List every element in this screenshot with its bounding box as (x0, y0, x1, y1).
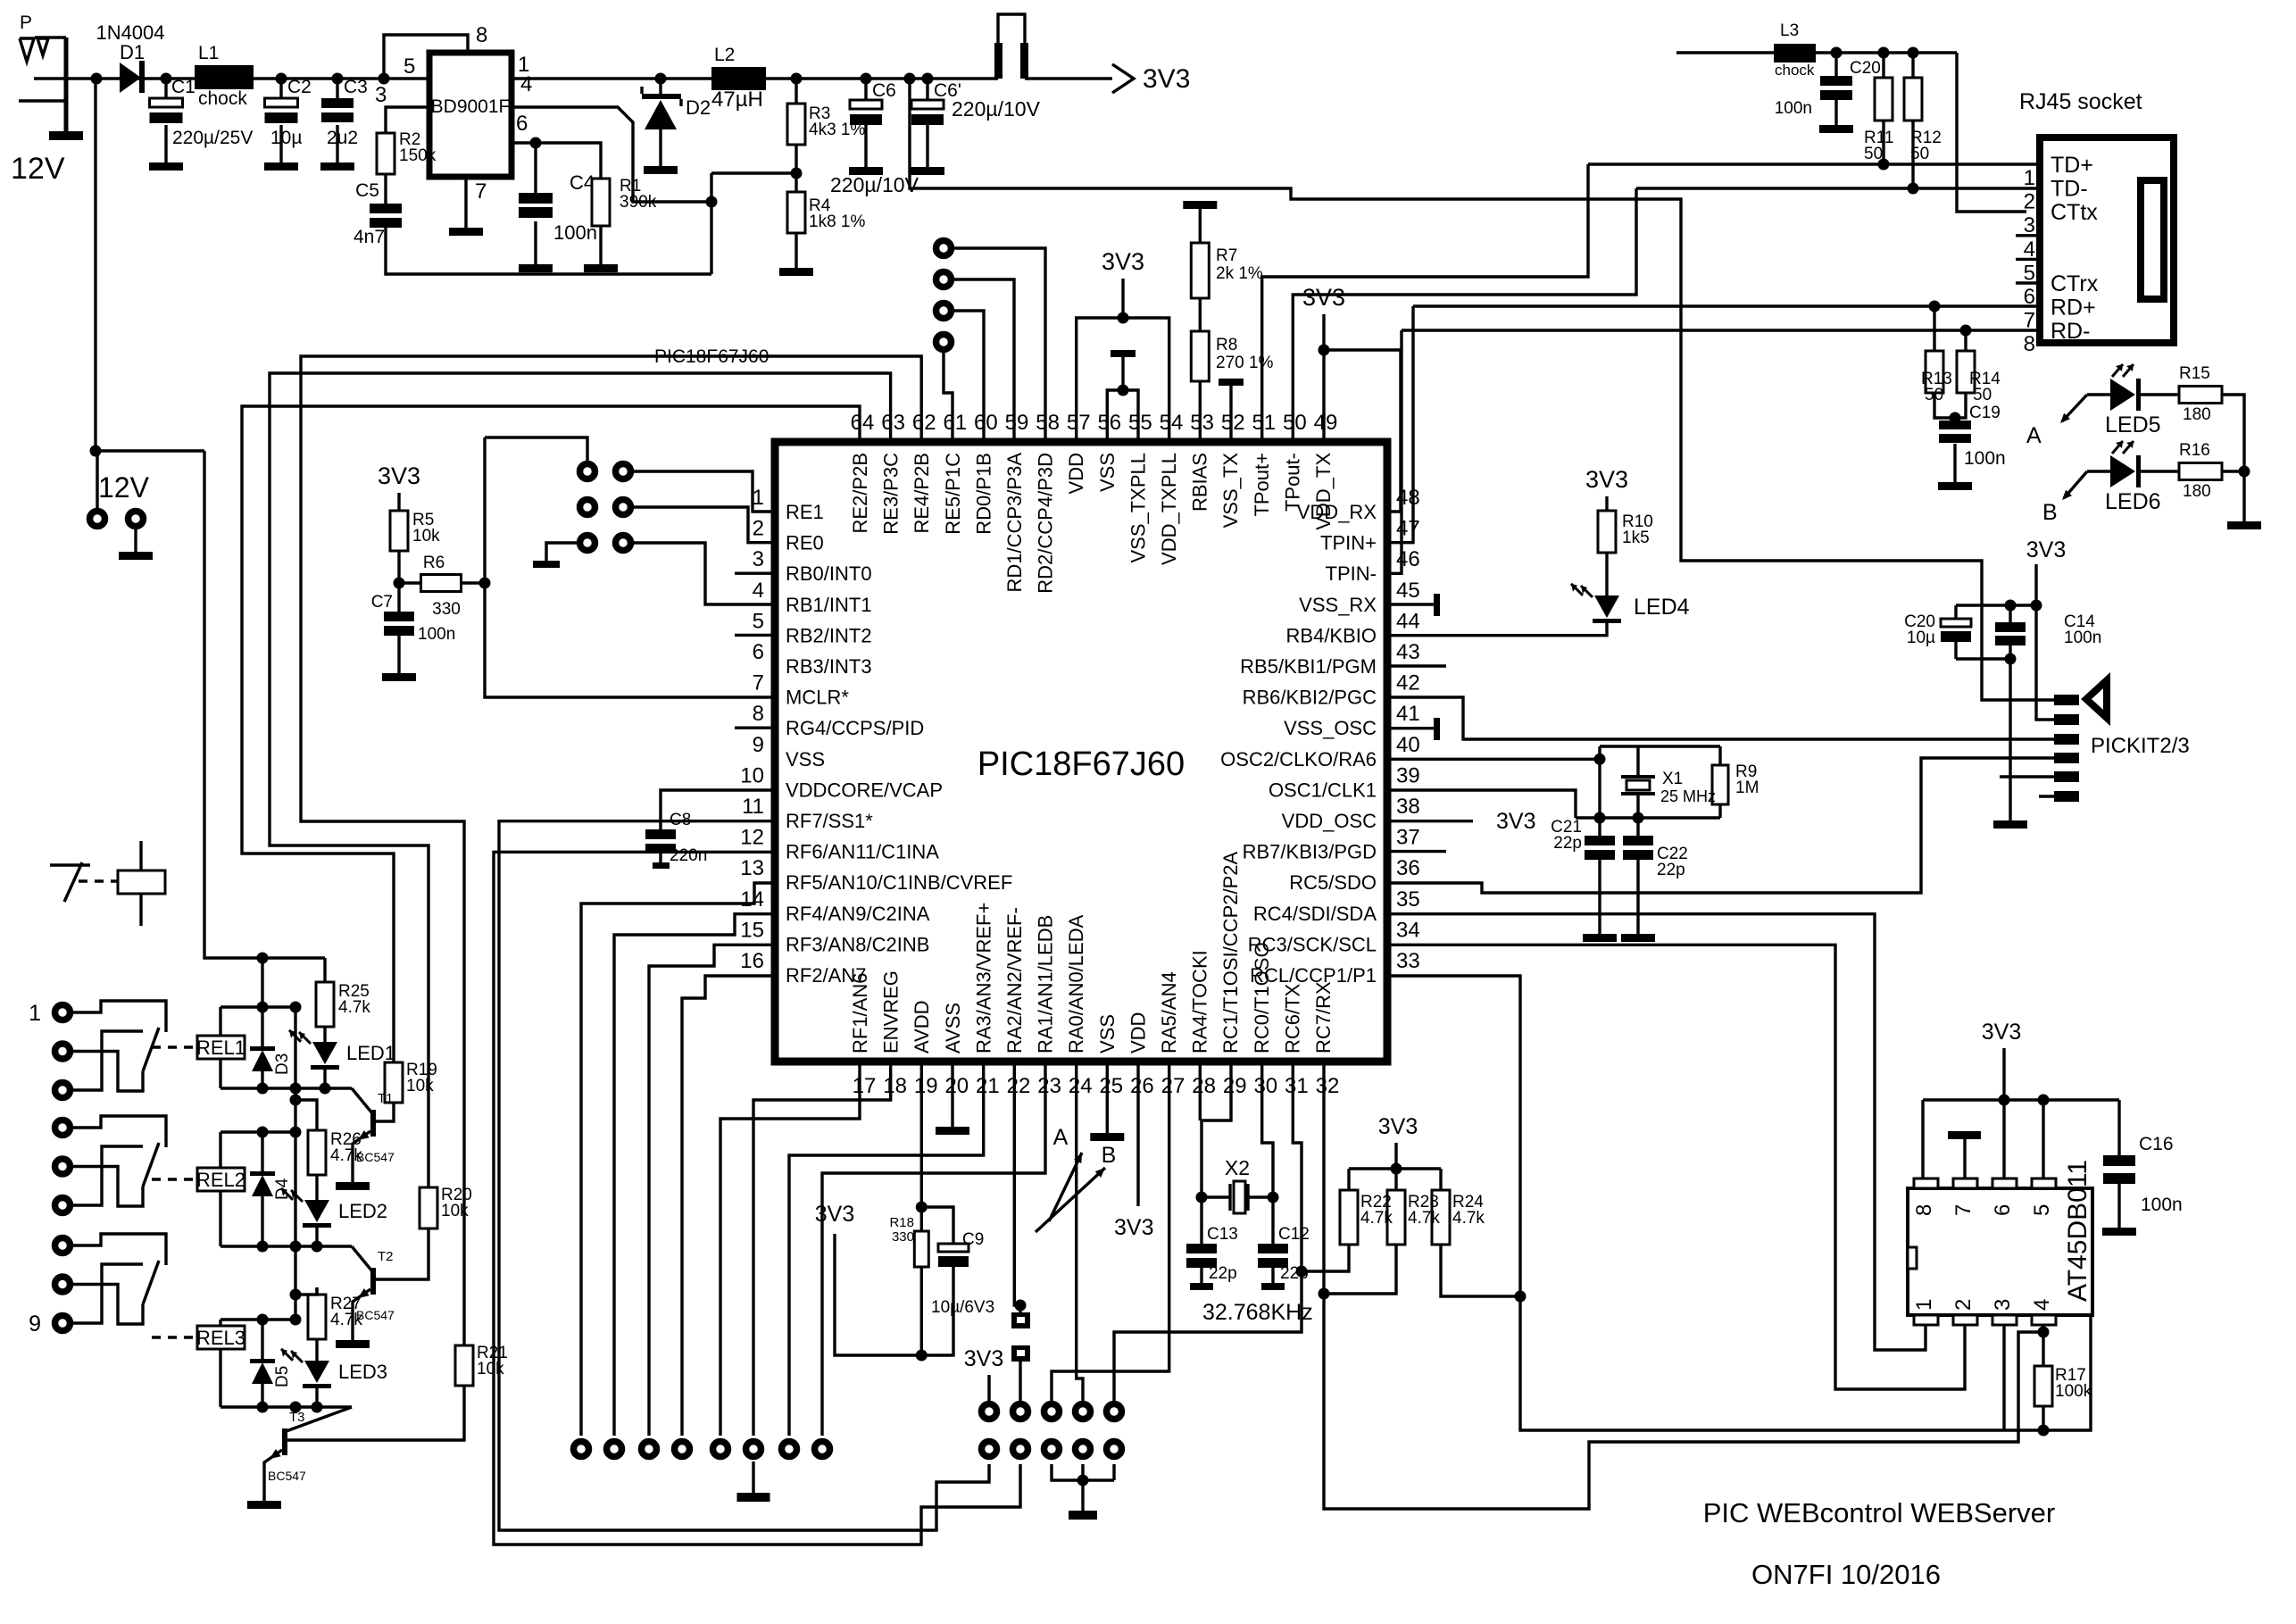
svg-text:chock: chock (1775, 62, 1815, 79)
svg-text:50: 50 (1925, 386, 1943, 404)
svg-text:T1: T1 (378, 1091, 394, 1106)
svg-text:330: 330 (432, 600, 461, 619)
svg-text:10µ: 10µ (1907, 629, 1935, 647)
svg-text:VSS_RX: VSS_RX (1299, 594, 1377, 616)
svg-text:RBIAS: RBIAS (1189, 453, 1211, 512)
svg-text:CTtx: CTtx (2051, 200, 2098, 225)
svg-text:A: A (2026, 423, 2042, 448)
svg-text:38: 38 (1396, 795, 1420, 819)
svg-text:12: 12 (740, 826, 764, 850)
svg-text:RG4/CCPS/PID: RG4/CCPS/PID (786, 717, 924, 739)
svg-text:220µ/10V: 220µ/10V (952, 97, 1041, 121)
svg-text:R15: R15 (2179, 364, 2210, 383)
svg-text:R7: R7 (1216, 246, 1237, 265)
svg-text:ON7FI 10/2016: ON7FI 10/2016 (1751, 1559, 1941, 1590)
svg-text:4.7k: 4.7k (330, 1146, 362, 1165)
svg-text:B: B (2042, 500, 2058, 525)
svg-text:7: 7 (475, 179, 487, 204)
svg-text:58: 58 (1036, 411, 1060, 435)
svg-text:10k: 10k (412, 527, 440, 545)
svg-text:RB4/KBIO: RB4/KBIO (1286, 624, 1377, 646)
svg-text:37: 37 (1396, 826, 1420, 850)
svg-text:8: 8 (753, 702, 764, 726)
svg-text:47: 47 (1396, 517, 1420, 541)
svg-text:220n: 220n (670, 846, 707, 865)
svg-text:150k: 150k (399, 146, 437, 165)
svg-text:VSS_TXPLL: VSS_TXPLL (1127, 453, 1149, 563)
svg-text:18: 18 (883, 1074, 907, 1098)
svg-text:1: 1 (29, 1001, 41, 1026)
svg-text:C2: C2 (287, 77, 312, 97)
svg-text:LED6: LED6 (2105, 489, 2161, 514)
svg-text:44: 44 (1396, 609, 1420, 633)
svg-text:VDD_OSC: VDD_OSC (1282, 810, 1377, 832)
svg-text:3V3: 3V3 (2026, 537, 2066, 562)
svg-text:63: 63 (881, 411, 905, 435)
svg-text:RD-: RD- (2051, 319, 2090, 344)
svg-text:RD1/CCP3/P3A: RD1/CCP3/P3A (1003, 453, 1026, 593)
svg-text:RF3/AN8/C2INB: RF3/AN8/C2INB (786, 933, 929, 955)
svg-text:54: 54 (1160, 411, 1184, 435)
svg-text:L3: L3 (1780, 21, 1799, 40)
svg-text:RF4/AN9/C2INA: RF4/AN9/C2INA (786, 903, 930, 925)
svg-text:3V3: 3V3 (815, 1202, 854, 1227)
svg-text:57: 57 (1067, 411, 1091, 435)
svg-text:6: 6 (1991, 1204, 2015, 1216)
svg-text:9: 9 (29, 1312, 41, 1337)
svg-text:20: 20 (944, 1074, 969, 1098)
svg-text:4.7k: 4.7k (338, 998, 370, 1017)
svg-text:VDD_TXPLL: VDD_TXPLL (1158, 453, 1180, 565)
svg-text:3V3: 3V3 (1302, 284, 1345, 311)
svg-text:3V3: 3V3 (1114, 1215, 1153, 1240)
svg-text:4: 4 (753, 579, 764, 603)
svg-text:C20: C20 (1850, 59, 1881, 78)
svg-text:19: 19 (914, 1074, 938, 1098)
svg-text:RE2/P2B: RE2/P2B (849, 453, 871, 534)
svg-text:BD9001F: BD9001F (431, 96, 511, 117)
svg-text:42: 42 (1396, 671, 1420, 695)
svg-text:CTrx: CTrx (2051, 271, 2099, 296)
svg-text:C1: C1 (171, 77, 195, 97)
svg-text:3V3: 3V3 (1143, 64, 1190, 94)
svg-text:VSS: VSS (1096, 453, 1119, 492)
svg-text:10µ/6V3: 10µ/6V3 (931, 1298, 994, 1317)
svg-text:TD+: TD+ (2051, 153, 2093, 178)
svg-text:R18: R18 (889, 1215, 914, 1230)
svg-text:RC5/SDO: RC5/SDO (1289, 871, 1377, 894)
svg-text:D2: D2 (686, 96, 711, 119)
svg-text:C5: C5 (355, 180, 379, 201)
svg-text:PIC WEBcontrol WEBServer: PIC WEBcontrol WEBServer (1703, 1497, 2055, 1528)
svg-text:3V3: 3V3 (1585, 466, 1628, 493)
svg-text:12V: 12V (11, 152, 65, 186)
svg-text:AVSS: AVSS (942, 1003, 964, 1054)
svg-text:9: 9 (753, 733, 764, 757)
svg-text:8: 8 (1912, 1204, 1936, 1216)
svg-text:22: 22 (1007, 1074, 1031, 1098)
svg-text:D3: D3 (273, 1054, 292, 1075)
svg-text:6: 6 (516, 112, 528, 136)
svg-text:31: 31 (1285, 1074, 1309, 1098)
svg-text:28: 28 (1192, 1074, 1216, 1098)
svg-text:35: 35 (1396, 887, 1420, 912)
svg-text:390k: 390k (620, 193, 657, 212)
svg-text:TPIN-: TPIN- (1326, 562, 1377, 585)
svg-text:16: 16 (740, 949, 764, 973)
svg-text:50: 50 (1283, 411, 1307, 435)
svg-text:41: 41 (1396, 702, 1420, 726)
svg-text:RF6/AN11/C1INA: RF6/AN11/C1INA (786, 841, 939, 863)
svg-text:7: 7 (753, 671, 764, 695)
svg-text:100k: 100k (2055, 1382, 2092, 1401)
svg-text:3: 3 (1991, 1299, 2015, 1311)
svg-text:C16: C16 (2139, 1134, 2174, 1154)
svg-text:5: 5 (403, 54, 415, 79)
svg-text:R8: R8 (1216, 336, 1237, 354)
svg-text:22p: 22p (1553, 834, 1582, 853)
svg-text:VDD: VDD (1127, 1012, 1149, 1054)
svg-text:14: 14 (740, 887, 764, 912)
svg-text:30: 30 (1253, 1074, 1277, 1098)
svg-text:32: 32 (1316, 1074, 1340, 1098)
svg-text:RE0: RE0 (786, 532, 824, 554)
svg-text:24: 24 (1069, 1074, 1093, 1098)
svg-text:TPIN+: TPIN+ (1320, 532, 1377, 554)
svg-text:RE3/P3C: RE3/P3C (880, 453, 903, 535)
svg-text:220µ/25V: 220µ/25V (172, 128, 253, 148)
svg-text:4: 4 (2030, 1299, 2054, 1311)
svg-text:3: 3 (753, 547, 764, 571)
svg-text:R6: R6 (423, 554, 445, 572)
svg-text:LED1: LED1 (346, 1042, 395, 1064)
svg-text:RD0/P1B: RD0/P1B (972, 453, 994, 535)
svg-text:LED5: LED5 (2105, 412, 2161, 437)
svg-text:45: 45 (1396, 579, 1420, 603)
svg-text:RA2/AN2/VREF-: RA2/AN2/VREF- (1003, 907, 1026, 1054)
svg-text:11: 11 (742, 795, 764, 819)
svg-text:100n: 100n (418, 625, 455, 644)
svg-text:100n: 100n (2064, 629, 2101, 647)
svg-text:3V3: 3V3 (964, 1346, 1003, 1371)
svg-text:C9: C9 (962, 1230, 984, 1249)
svg-text:REL1: REL1 (196, 1037, 245, 1059)
svg-text:12V: 12V (98, 471, 150, 504)
svg-text:RC0/T1OSO: RC0/T1OSO (1251, 942, 1273, 1054)
svg-text:RB1/INT1: RB1/INT1 (786, 594, 872, 616)
svg-text:330: 330 (892, 1229, 914, 1245)
svg-text:49: 49 (1314, 411, 1338, 435)
svg-text:10k: 10k (477, 1360, 504, 1378)
svg-text:7: 7 (1951, 1204, 1976, 1216)
svg-text:RA5/AN4: RA5/AN4 (1158, 971, 1180, 1054)
svg-text:A: A (1053, 1125, 1069, 1150)
svg-text:RA3/AN3/VREF+: RA3/AN3/VREF+ (972, 903, 994, 1054)
svg-text:100n: 100n (1775, 99, 1812, 118)
svg-text:RA0/AN0/LEDA: RA0/AN0/LEDA (1065, 914, 1087, 1054)
svg-text:3V3: 3V3 (378, 462, 420, 489)
svg-text:REL2: REL2 (196, 1169, 245, 1191)
svg-text:B: B (1102, 1143, 1117, 1168)
svg-text:56: 56 (1097, 411, 1121, 435)
svg-text:3V3: 3V3 (1496, 809, 1535, 834)
svg-text:2: 2 (753, 517, 764, 541)
svg-text:8: 8 (476, 23, 487, 47)
svg-text:13: 13 (740, 856, 764, 880)
svg-text:RB5/KBI1/PGM: RB5/KBI1/PGM (1240, 655, 1377, 678)
svg-text:100n: 100n (1964, 448, 2006, 469)
svg-text:RB3/INT3: RB3/INT3 (786, 655, 872, 678)
svg-text:REL3: REL3 (196, 1327, 245, 1349)
svg-text:1k5: 1k5 (1622, 529, 1650, 547)
svg-text:46: 46 (1396, 547, 1420, 571)
svg-text:AT45DB011: AT45DB011 (2063, 1160, 2092, 1302)
svg-text:4.7k: 4.7k (1360, 1209, 1393, 1228)
svg-text:6: 6 (753, 640, 764, 664)
svg-text:64: 64 (851, 411, 875, 435)
svg-text:VSS_OSC: VSS_OSC (1284, 717, 1377, 739)
svg-text:RB7/KBI3/PGD: RB7/KBI3/PGD (1243, 841, 1377, 863)
svg-text:40: 40 (1396, 733, 1420, 757)
svg-text:17: 17 (853, 1074, 877, 1098)
svg-text:LED2: LED2 (338, 1200, 387, 1222)
svg-text:LED4: LED4 (1634, 595, 1690, 620)
svg-text:25 MHz: 25 MHz (1660, 787, 1716, 805)
svg-text:60: 60 (974, 411, 998, 435)
svg-text:RE1: RE1 (786, 501, 824, 523)
svg-text:43: 43 (1396, 640, 1420, 664)
svg-text:T3: T3 (289, 1410, 305, 1425)
svg-text:22p: 22p (1209, 1264, 1237, 1283)
svg-text:2: 2 (1951, 1299, 1976, 1311)
svg-text:RJ45 socket: RJ45 socket (2019, 89, 2142, 114)
svg-text:L2: L2 (714, 45, 735, 65)
svg-text:4.7k: 4.7k (330, 1311, 362, 1329)
svg-text:3V3: 3V3 (1378, 1114, 1418, 1139)
svg-text:RF7/SS1*: RF7/SS1* (786, 810, 873, 832)
svg-text:1: 1 (1912, 1299, 1936, 1311)
svg-text:180: 180 (2183, 482, 2211, 501)
svg-text:10k: 10k (441, 1202, 469, 1220)
svg-text:ENVREG: ENVREG (880, 970, 903, 1054)
svg-text:55: 55 (1128, 411, 1152, 435)
svg-text:MCLR*: MCLR* (786, 687, 849, 709)
svg-text:VSS: VSS (1096, 1014, 1119, 1054)
svg-text:VSS_TX: VSS_TX (1219, 453, 1242, 529)
svg-text:5: 5 (2030, 1204, 2054, 1216)
svg-text:2: 2 (2024, 190, 2035, 214)
svg-text:8: 8 (2024, 332, 2035, 356)
svg-text:chock: chock (198, 88, 247, 109)
svg-text:AVDD: AVDD (911, 1001, 933, 1054)
svg-text:RE4/P2B: RE4/P2B (911, 453, 933, 534)
svg-text:BC547: BC547 (268, 1469, 306, 1483)
svg-text:X2: X2 (1225, 1156, 1250, 1179)
svg-text:RB0/INT0: RB0/INT0 (786, 562, 872, 585)
svg-text:RD2/CCP4/P3D: RD2/CCP4/P3D (1035, 453, 1057, 594)
svg-text:X1: X1 (1662, 770, 1683, 788)
svg-text:RC4/SDI/SDA: RC4/SDI/SDA (1253, 903, 1377, 925)
svg-text:C12: C12 (1278, 1225, 1310, 1244)
svg-text:RB6/KBI2/PGC: RB6/KBI2/PGC (1243, 687, 1377, 709)
svg-text:47µH: 47µH (711, 87, 763, 112)
svg-text:VDDCORE/VCAP: VDDCORE/VCAP (786, 779, 943, 801)
svg-text:39: 39 (1396, 763, 1420, 787)
svg-text:15: 15 (740, 918, 764, 942)
svg-text:RA4/TOCKI: RA4/TOCKI (1189, 950, 1211, 1054)
svg-text:1k8 1%: 1k8 1% (809, 212, 865, 231)
svg-text:10µ: 10µ (270, 128, 302, 148)
svg-text:2k 1%: 2k 1% (1216, 264, 1263, 283)
svg-text:100n: 100n (2141, 1195, 2183, 1215)
svg-text:VDD: VDD (1065, 453, 1087, 494)
svg-text:D5: D5 (273, 1366, 292, 1387)
svg-text:PIC18F67J60: PIC18F67J60 (977, 745, 1185, 783)
svg-text:4.7k: 4.7k (1408, 1209, 1440, 1228)
svg-text:C6: C6 (872, 80, 896, 101)
svg-text:TD-: TD- (2051, 177, 2088, 202)
svg-text:52: 52 (1221, 411, 1245, 435)
svg-text:220µ/10V: 220µ/10V (830, 173, 919, 196)
svg-text:34: 34 (1396, 918, 1420, 942)
svg-text:RA1/AN1/LEDB: RA1/AN1/LEDB (1035, 915, 1057, 1054)
svg-text:D1: D1 (120, 41, 145, 63)
svg-text:C3: C3 (344, 77, 368, 97)
svg-text:T2: T2 (378, 1249, 394, 1264)
svg-text:180: 180 (2183, 405, 2211, 424)
svg-text:RC6/TX: RC6/TX (1281, 983, 1303, 1054)
svg-text:C19: C19 (1969, 404, 2001, 422)
svg-text:RF1/AN6: RF1/AN6 (849, 973, 871, 1054)
svg-text:29: 29 (1223, 1074, 1247, 1098)
svg-text:3: 3 (375, 83, 387, 107)
svg-text:50: 50 (1910, 145, 1929, 163)
svg-text:LED3: LED3 (338, 1361, 387, 1383)
svg-text:22p: 22p (1657, 861, 1685, 879)
svg-text:RE5/P1C: RE5/P1C (942, 453, 964, 535)
svg-text:10: 10 (740, 763, 764, 787)
svg-text:RF5/AN10/C1INB/CVREF: RF5/AN10/C1INB/CVREF (786, 871, 1012, 894)
svg-text:59: 59 (1005, 411, 1029, 435)
svg-text:62: 62 (912, 411, 936, 435)
svg-text:3V3: 3V3 (1982, 1020, 2021, 1045)
svg-text:4: 4 (520, 72, 532, 96)
svg-text:50: 50 (1973, 386, 1992, 404)
svg-text:27: 27 (1161, 1074, 1185, 1098)
svg-text:4n7: 4n7 (354, 227, 385, 247)
svg-text:4.7k: 4.7k (1452, 1209, 1485, 1228)
svg-text:1M: 1M (1735, 779, 1759, 797)
svg-text:32.768KHz: 32.768KHz (1202, 1300, 1313, 1325)
svg-text:1: 1 (2024, 166, 2035, 190)
svg-text:L1: L1 (198, 43, 219, 63)
svg-text:PICKIT2/3: PICKIT2/3 (2091, 734, 2190, 758)
svg-text:25: 25 (1099, 1074, 1123, 1098)
svg-text:23: 23 (1037, 1074, 1061, 1098)
svg-text:OSC2/CLKO/RA6: OSC2/CLKO/RA6 (1220, 748, 1377, 770)
svg-text:26: 26 (1130, 1074, 1154, 1098)
svg-text:RD+: RD+ (2051, 296, 2096, 321)
svg-text:C13: C13 (1207, 1225, 1238, 1244)
svg-text:10k: 10k (406, 1077, 434, 1095)
svg-text:21: 21 (976, 1074, 1000, 1098)
svg-text:270 1%: 270 1% (1216, 354, 1274, 372)
svg-text:TPout+: TPout+ (1251, 453, 1273, 517)
svg-text:3V3: 3V3 (1102, 248, 1144, 275)
svg-text:VSS: VSS (786, 748, 825, 770)
svg-text:R16: R16 (2179, 441, 2210, 460)
svg-text:C7: C7 (371, 593, 393, 612)
svg-text:2u2: 2u2 (327, 128, 358, 148)
svg-text:OSC1/CLK1: OSC1/CLK1 (1269, 779, 1377, 801)
svg-text:36: 36 (1396, 856, 1420, 880)
svg-text:5: 5 (753, 609, 764, 633)
svg-text:33: 33 (1396, 949, 1420, 973)
svg-text:61: 61 (943, 411, 967, 435)
svg-text:51: 51 (1252, 411, 1276, 435)
svg-text:RB2/INT2: RB2/INT2 (786, 624, 872, 646)
svg-text:RC1/T1OSI/CCP2/P2A: RC1/T1OSI/CCP2/P2A (1219, 851, 1242, 1054)
svg-text:53: 53 (1190, 411, 1214, 435)
svg-text:VDD_RX: VDD_RX (1297, 501, 1377, 523)
svg-text:P: P (20, 12, 32, 33)
svg-text:RC7/RX: RC7/RX (1312, 981, 1335, 1054)
